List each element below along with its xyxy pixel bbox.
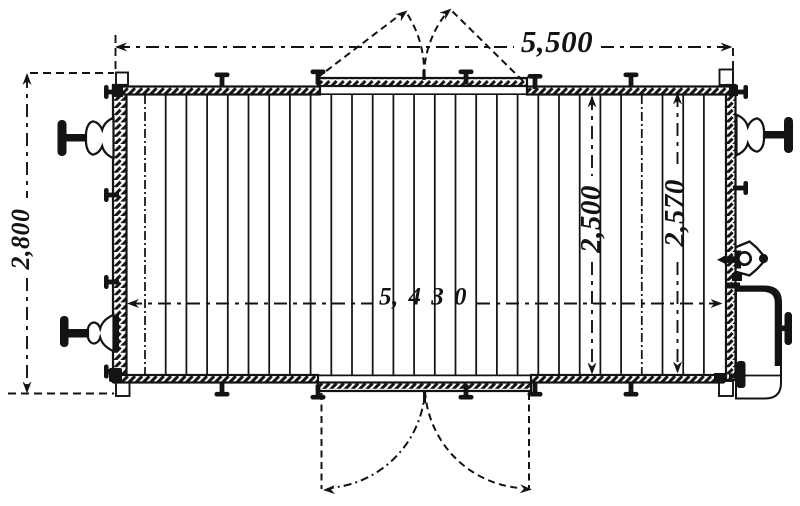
svg-text:5,500: 5,500 [521, 24, 593, 59]
svg-text:2,570: 2,570 [659, 179, 691, 248]
svg-text:5, 4 3 0: 5, 4 3 0 [379, 284, 467, 311]
svg-text:2,800: 2,800 [6, 209, 35, 271]
svg-text:2,500: 2,500 [575, 185, 607, 254]
